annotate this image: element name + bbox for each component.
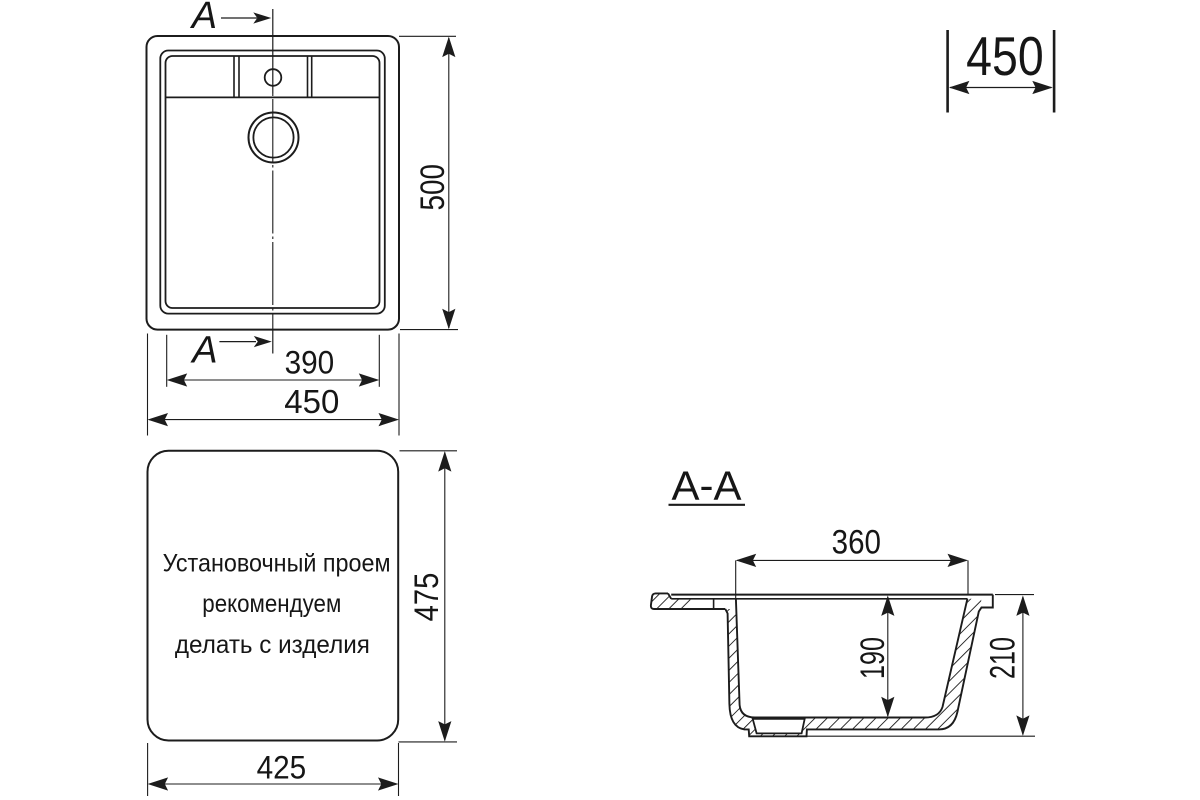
svg-text:Установочный проем: Установочный проем (163, 549, 391, 577)
svg-text:210: 210 (984, 637, 1023, 679)
svg-text:190: 190 (854, 637, 892, 679)
svg-text:390: 390 (285, 344, 335, 380)
svg-text:425: 425 (257, 749, 307, 785)
svg-text:делать с изделия: делать с изделия (175, 631, 370, 659)
svg-text:450: 450 (966, 26, 1044, 88)
svg-text:A: A (190, 330, 217, 372)
svg-text:475: 475 (407, 573, 446, 622)
svg-text:450: 450 (284, 383, 339, 420)
svg-text:рекомендуем: рекомендуем (202, 590, 341, 618)
svg-text:500: 500 (413, 164, 451, 211)
svg-text:A-A: A-A (672, 463, 743, 509)
svg-text:360: 360 (832, 522, 881, 560)
svg-text:A: A (190, 0, 217, 37)
